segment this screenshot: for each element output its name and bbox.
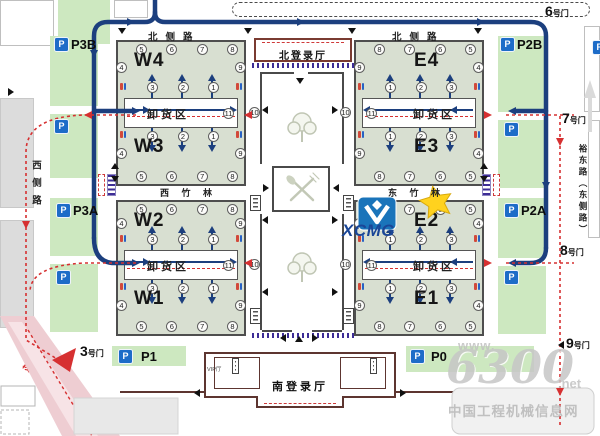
gate-number: 9: [235, 148, 246, 159]
escalator-booth: [343, 308, 354, 324]
gate-number: 1: [385, 82, 396, 93]
hall-name: W2: [134, 210, 165, 232]
gate-number: 7: [197, 204, 208, 215]
gate-number: 7: [197, 321, 208, 332]
east-road-label: 裕东路（东侧路）: [577, 144, 589, 236]
south-registration-hall: 南登录厅 VIP厅: [204, 352, 396, 398]
restroom-icon: [236, 235, 242, 242]
unloading-label: 卸货区: [413, 258, 455, 274]
gate-number: 2: [178, 131, 189, 142]
gate-number: 3: [446, 131, 457, 142]
building-block: [584, 26, 600, 112]
restroom-icon: [120, 131, 126, 138]
gate-row: 123: [385, 234, 457, 245]
flow-arrow: [480, 163, 488, 169]
west-bamboo-label: 西 竹 林: [160, 186, 217, 199]
parking-label-p3a: P3A: [73, 203, 98, 218]
gate-number: 4: [473, 300, 484, 311]
gate-number: 8: [374, 204, 385, 215]
building-block: [0, 0, 54, 46]
watermark-site: 中国工程机械信息网: [448, 400, 579, 420]
unloading-strip: 卸货区 11: [124, 250, 238, 280]
gate-number: 1: [208, 283, 219, 294]
gate-3: 3号门: [80, 343, 104, 361]
unloading-label: 卸货区: [147, 106, 189, 122]
flow-arrow: [262, 288, 268, 296]
parking-icon: P: [54, 37, 69, 52]
restroom-icon: [358, 131, 364, 138]
gate-number: 4: [116, 300, 127, 311]
gate-number: 11: [366, 108, 377, 119]
parking-icon: P: [54, 119, 69, 134]
gate-number: 6: [166, 321, 177, 332]
gate-number: 1: [385, 283, 396, 294]
atrium-wall: [312, 330, 342, 332]
parking-area-p0: [406, 346, 534, 372]
gate-number: 3: [147, 82, 158, 93]
flow-arrow: [474, 28, 482, 34]
gate-number: 4: [473, 218, 484, 229]
gate-number: 1: [208, 82, 219, 93]
gate-number: 7: [404, 321, 415, 332]
building-block: [588, 120, 600, 238]
parking-icon: P: [500, 37, 515, 52]
flow-arrow: [332, 288, 338, 296]
vip-hall-label: VIP厅: [207, 365, 221, 373]
flow-arrow: [558, 341, 564, 349]
gate-number: 2: [178, 234, 189, 245]
restroom-icon: [120, 83, 126, 90]
gate-number: 3: [147, 234, 158, 245]
unloading-label: 卸货区: [413, 106, 455, 122]
restroom-icon: [120, 283, 126, 290]
xcmg-wordmark: XCMG: [342, 221, 395, 241]
gate-number: 9: [235, 218, 246, 229]
security-hatch-band: [252, 63, 354, 68]
north-road-label: 北侧路: [392, 29, 445, 43]
red-dash-line: [262, 42, 344, 43]
unloading-strip: 卸货区 11: [362, 98, 476, 128]
gate-number: 6: [435, 171, 446, 182]
flow-arrow: [332, 216, 338, 224]
flow-arrow: [332, 106, 338, 114]
gate-number: 6: [166, 204, 177, 215]
atrium-wall: [308, 72, 342, 74]
hall-name: W3: [134, 136, 165, 158]
security-hatch-band: [252, 333, 354, 338]
gate-number: 8: [227, 321, 238, 332]
escalator-booth: [343, 195, 354, 211]
east-bamboo-label: 东 竹 林: [388, 186, 445, 199]
gate-row: 123: [385, 82, 457, 93]
flow-arrow: [263, 184, 269, 192]
red-dash-line: [264, 403, 336, 404]
atrium-wall: [262, 72, 294, 74]
gate-number: 1: [208, 131, 219, 142]
restaurant-building: [272, 166, 330, 212]
south-hall-notch: [256, 396, 344, 408]
gate-number: 10: [249, 259, 260, 270]
gate-number: 1: [385, 131, 396, 142]
gate-number: 2: [416, 234, 427, 245]
gate-number: 8: [227, 204, 238, 215]
gate-number: 3: [446, 82, 457, 93]
unloading-strip: 卸货区 11: [124, 98, 238, 128]
building-block: [0, 220, 34, 328]
hall-name: E2: [414, 210, 439, 232]
gate-number: 5: [465, 321, 476, 332]
gate-number: 4: [116, 218, 127, 229]
gate-number: 5: [465, 44, 476, 55]
flow-arrow: [400, 389, 406, 397]
flow-arrow: [111, 176, 119, 182]
gate-number: 10: [340, 259, 351, 270]
restroom-icon: [120, 235, 126, 242]
gate-number: 6: [166, 44, 177, 55]
gate-number: 9: [354, 62, 365, 73]
parking-icon: P: [504, 270, 519, 285]
flow-arrow: [480, 176, 488, 182]
gate-number: 11: [223, 260, 234, 271]
gate-number: 5: [465, 204, 476, 215]
atrium-wall: [262, 330, 292, 332]
west-entrance-booth: [98, 174, 105, 196]
gate-number: 9: [235, 300, 246, 311]
road-section-label: 路段: [16, 346, 43, 376]
parking-label-p3b: P3B: [71, 37, 96, 52]
parking-icon: P: [56, 203, 71, 218]
flow-arrow: [111, 163, 119, 169]
unloading-label: 卸货区: [147, 258, 189, 274]
building-block: [1, 410, 29, 434]
hall-name: E4: [414, 50, 439, 72]
gate-number: 5: [136, 171, 147, 182]
parking-label-p2a: P2A: [521, 203, 546, 218]
atrium-wall: [260, 72, 262, 164]
unloading-strip: 卸货区 11: [362, 250, 476, 280]
gate-number: 9: [354, 148, 365, 159]
gate-8: 8号门: [560, 242, 584, 260]
gate-number: 10: [249, 107, 260, 118]
parking-label-p1: P1: [141, 349, 157, 364]
gate-6: 6号门: [545, 3, 569, 21]
restroom-icon: [358, 283, 364, 290]
hall-block-e4-e3: 8765 9 4 E4 123 卸货区 11 10 123 E3 9 4 876…: [354, 40, 484, 186]
gate-row: 5678: [136, 171, 238, 182]
restroom-icon: [474, 131, 480, 138]
gate-number: 1: [208, 234, 219, 245]
restroom-icon: [474, 283, 480, 290]
hall-block-w4-w3: 5678 4 9 W4 321 卸货区 11 10 321 W3 4 9 567…: [116, 40, 246, 186]
gate-number: 4: [473, 148, 484, 159]
south-hall-label: 南登录厅: [206, 378, 394, 394]
hall-name: W4: [134, 50, 165, 72]
gate-number: 4: [473, 62, 484, 73]
restroom-icon: [236, 83, 242, 90]
west-road-label: 西侧路: [28, 160, 42, 213]
gate-number: 5: [465, 171, 476, 182]
gate-row: 321: [147, 82, 219, 93]
gate-row: 5678: [136, 321, 238, 332]
gate-number: 2: [178, 82, 189, 93]
gate-7: 7号门: [562, 110, 586, 128]
flow-arrow: [194, 389, 200, 397]
building-block: [1, 386, 35, 406]
restroom-icon: [474, 235, 480, 242]
parking-label-p2b: P2B: [517, 37, 542, 52]
gate-number: 6: [166, 171, 177, 182]
watermark-net: .net: [558, 376, 581, 391]
booth: [232, 358, 239, 374]
booth: [370, 358, 377, 374]
gate-number: 8: [227, 171, 238, 182]
hall-name: W1: [134, 288, 165, 310]
flow-arrow: [333, 184, 339, 192]
gate-number: 8: [374, 321, 385, 332]
flow-arrow: [262, 216, 268, 224]
building-block: [114, 0, 148, 18]
parking-icon: P: [504, 122, 519, 137]
gate-number: 6: [435, 321, 446, 332]
atrium-wall: [342, 72, 344, 164]
restroom-icon: [236, 131, 242, 138]
gate-number: 9: [354, 300, 365, 311]
flow-arrow: [312, 334, 318, 342]
gate-number: 3: [446, 234, 457, 245]
flow-arrow: [244, 28, 252, 34]
gate-number: 7: [197, 171, 208, 182]
flow-arrow: [348, 28, 356, 34]
north-dashed-zone: [232, 2, 590, 17]
gate-number: 11: [223, 108, 234, 119]
flow-arrow: [296, 78, 304, 84]
gate-number: 2: [178, 283, 189, 294]
north-hall-label: 北登录厅: [256, 47, 350, 62]
north-registration-hall: 北登录厅: [254, 38, 352, 62]
flow-arrow: [280, 334, 286, 342]
north-road-label: 北侧路: [148, 29, 201, 43]
flow-arrow: [118, 28, 126, 34]
building-block: [452, 388, 594, 434]
gate-number: 11: [366, 260, 377, 271]
flow-arrow: [262, 106, 268, 114]
south-hall-wing: [120, 391, 204, 393]
gate-number: 5: [136, 321, 147, 332]
gate-number: 2: [416, 82, 427, 93]
escalator-booth: [250, 195, 261, 211]
gate-number: 7: [197, 44, 208, 55]
gate-row: 8765: [374, 321, 476, 332]
parking-icon: P: [410, 349, 425, 364]
gate-row: 321: [147, 234, 219, 245]
hall-name: E1: [414, 288, 439, 310]
restroom-icon: [358, 83, 364, 90]
gate-number: 4: [116, 62, 127, 73]
gate-number: 3: [446, 283, 457, 294]
gate-number: 4: [116, 148, 127, 159]
hall-block-w2-w1: 5678 4 9 W2 321 卸货区 11 10 321 W1 4 9 567…: [116, 200, 246, 336]
restroom-icon: [474, 83, 480, 90]
building-block: [74, 398, 178, 434]
venue-map: 北登录厅 南登录厅 VIP厅 5678 4 9 W4 321: [0, 0, 600, 436]
parking-label-p0: P0: [431, 349, 447, 364]
parking-icon: P: [118, 349, 133, 364]
parking-icon: P: [56, 270, 71, 285]
gate-9: 9号门: [566, 335, 590, 353]
gate-number: 8: [227, 44, 238, 55]
parking-icon: P: [592, 40, 600, 55]
hall-name: E3: [414, 136, 439, 158]
parking-icon: P: [504, 203, 519, 218]
south-hall-wing: [396, 391, 484, 393]
closed-road: [0, 316, 120, 436]
gate-number: 8: [374, 171, 385, 182]
flow-arrow: [295, 336, 303, 342]
gate-row: 8765: [374, 171, 476, 182]
escalator-booth: [250, 308, 261, 324]
flow-arrow: [8, 88, 14, 96]
gate-number: 10: [340, 107, 351, 118]
restroom-icon: [236, 283, 242, 290]
east-entrance-booth: [493, 174, 500, 196]
gate-number: 7: [404, 171, 415, 182]
gate-number: 9: [235, 62, 246, 73]
gate-number: 8: [374, 44, 385, 55]
